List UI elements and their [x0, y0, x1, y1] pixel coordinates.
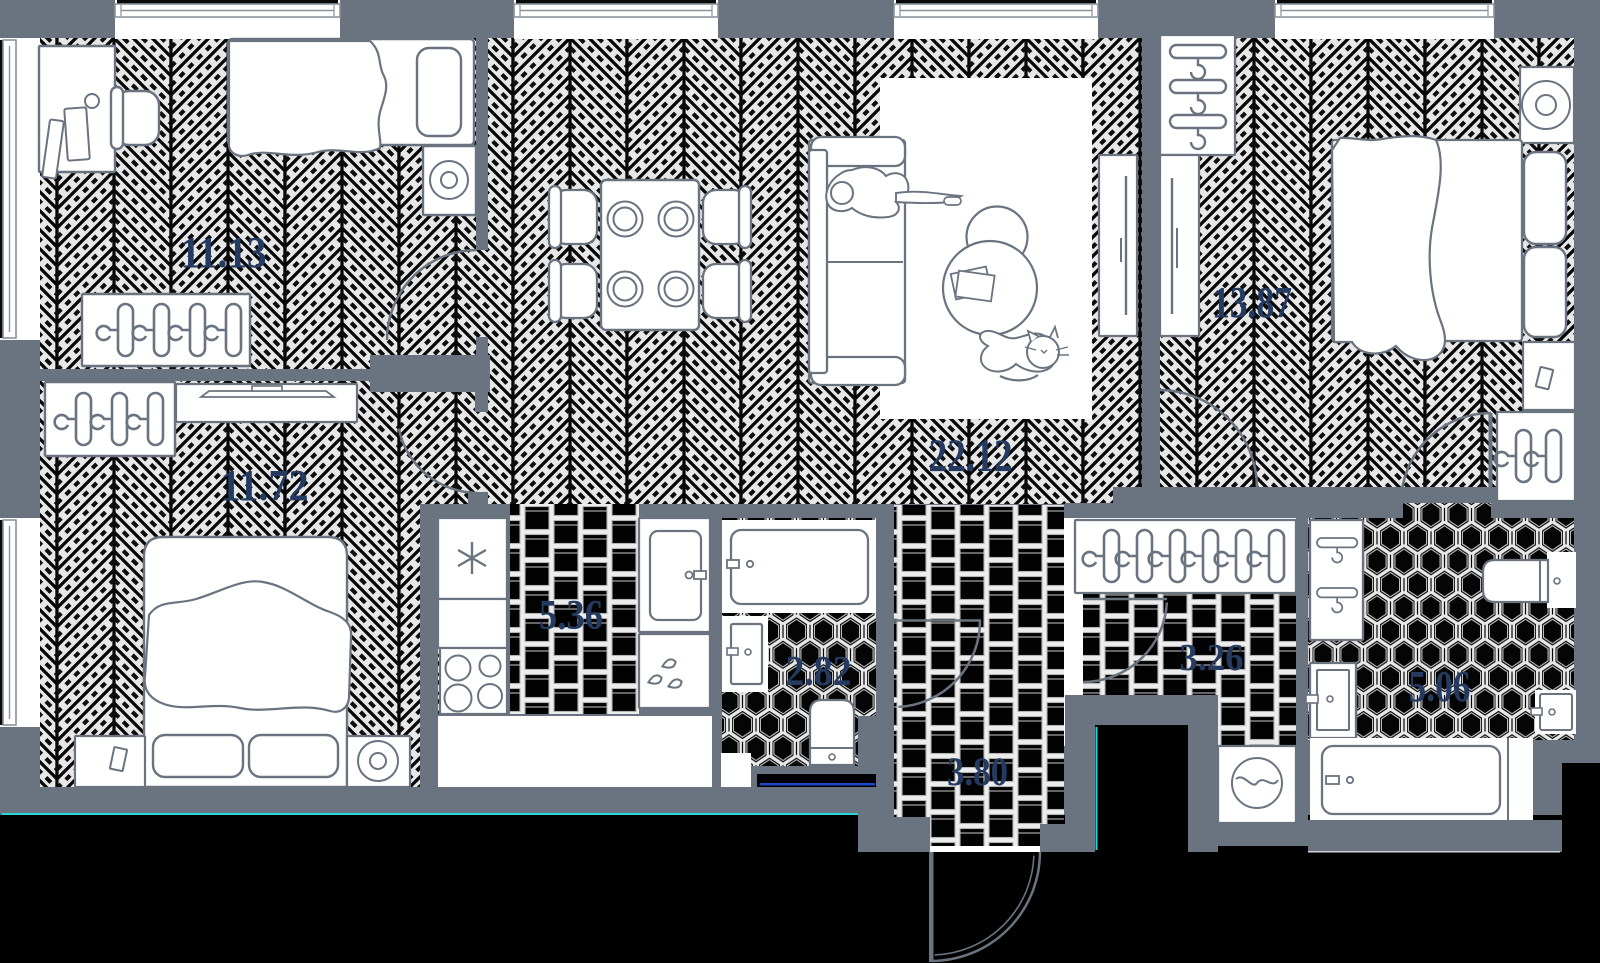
svg-text:22.12: 22.12: [929, 430, 1013, 482]
svg-text:2.82: 2.82: [786, 649, 852, 695]
svg-text:3.26: 3.26: [1180, 637, 1244, 679]
svg-text:13.87: 13.87: [1212, 278, 1292, 327]
svg-text:5.06: 5.06: [1409, 662, 1471, 711]
svg-text:11.13: 11.13: [181, 228, 267, 277]
svg-text:11.72: 11.72: [221, 461, 309, 510]
svg-text:3.80: 3.80: [947, 749, 1008, 794]
svg-text:5.36: 5.36: [539, 593, 603, 639]
